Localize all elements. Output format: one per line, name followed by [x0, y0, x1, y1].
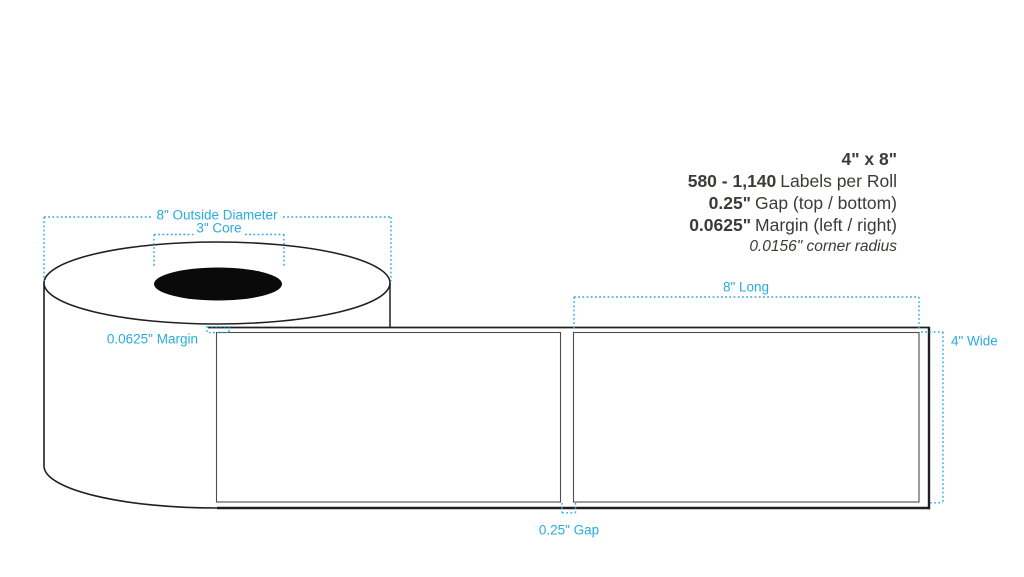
- spec-margin: 0.0625"Margin (left / right): [688, 214, 897, 236]
- spec-margin-value: 0.0625": [689, 215, 751, 235]
- label-1: [217, 333, 561, 503]
- label-width-label: 4" Wide: [948, 334, 1001, 349]
- wide-dimension: [921, 332, 943, 503]
- spec-quantity: 580 - 1,140Labels per Roll: [688, 170, 897, 192]
- spec-block: 4" x 8" 580 - 1,140Labels per Roll 0.25"…: [688, 148, 897, 258]
- spec-corner-radius: 0.0156" corner radius: [688, 236, 897, 258]
- spec-gap-label: Gap (top / bottom): [755, 193, 897, 213]
- liner-margin-label: 0.0625" Margin: [104, 332, 201, 347]
- label-gap-label: 0.25" Gap: [536, 523, 602, 538]
- spec-gap: 0.25"Gap (top / bottom): [688, 192, 897, 214]
- label-2: [574, 333, 920, 503]
- roll-core: [154, 268, 282, 301]
- long-dimension: [574, 297, 919, 330]
- label-roll-diagram: 8" Outside Diameter 3" Core 0.0625" Marg…: [0, 0, 1024, 577]
- spec-gap-value: 0.25": [709, 193, 751, 213]
- spec-quantity-value: 580 - 1,140: [688, 171, 777, 191]
- spec-quantity-label: Labels per Roll: [780, 171, 897, 191]
- spec-size: 4" x 8": [688, 148, 897, 170]
- spec-margin-label: Margin (left / right): [755, 215, 897, 235]
- core-label: 3" Core: [193, 221, 244, 236]
- label-length-label: 8" Long: [720, 280, 772, 295]
- roll-illustration: [0, 0, 1024, 577]
